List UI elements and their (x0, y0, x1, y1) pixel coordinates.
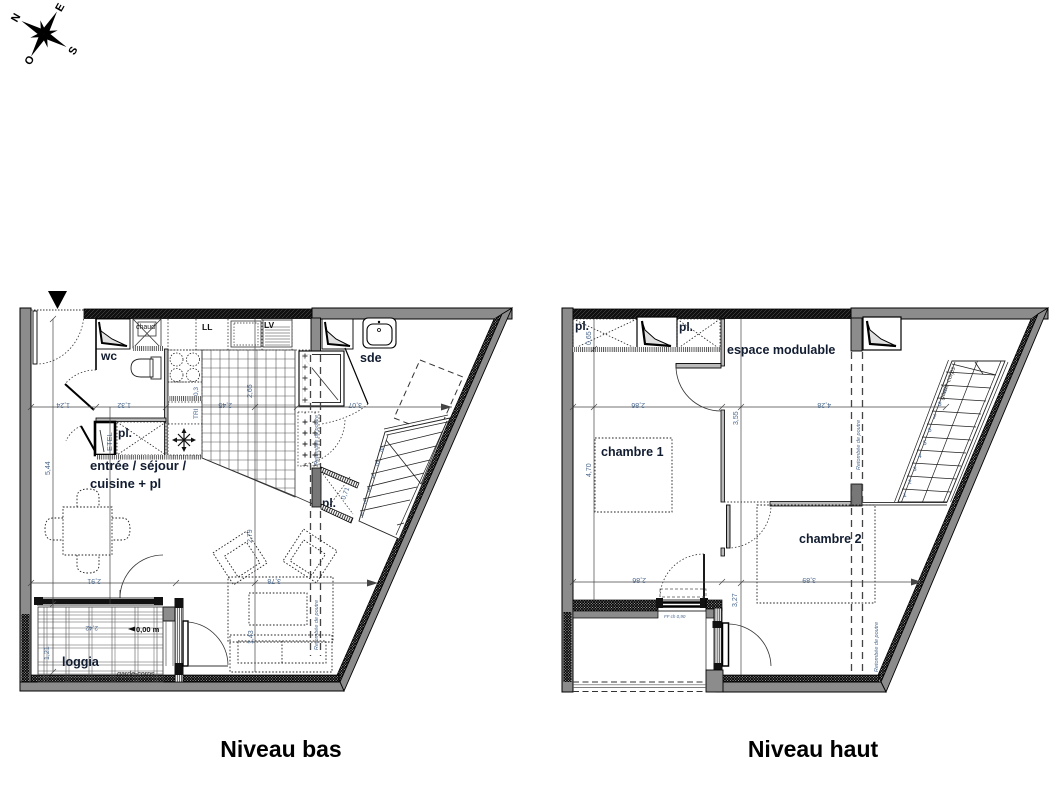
svg-text:0,3: 0,3 (193, 387, 200, 396)
svg-text:garde-corps: garde-corps (117, 671, 155, 678)
svg-text:Retombée de poutre: Retombée de poutre (314, 415, 320, 465)
svg-text:FF ch 0,90: FF ch 0,90 (664, 614, 686, 619)
svg-text:2,86: 2,86 (631, 401, 645, 408)
svg-text:ETEL: ETEL (105, 432, 114, 451)
svg-text:espace modulable: espace modulable (727, 343, 835, 357)
svg-text:chaud: chaud (136, 324, 155, 331)
svg-text:5: 5 (923, 440, 927, 447)
svg-text:1,24: 1,24 (56, 401, 70, 408)
svg-text:1,43: 1,43 (248, 630, 255, 644)
svg-text:sde: sde (360, 351, 382, 365)
svg-text:pl.: pl. (118, 426, 132, 440)
svg-text:chambre 1: chambre 1 (601, 445, 664, 459)
svg-text:Retombée de poutre: Retombée de poutre (314, 600, 320, 650)
svg-text:1,32: 1,32 (117, 401, 131, 408)
svg-text:5,44: 5,44 (45, 461, 52, 475)
svg-text:Retombée de poutre: Retombée de poutre (856, 420, 862, 470)
svg-text:4: 4 (918, 453, 922, 460)
svg-text:3,55: 3,55 (733, 411, 740, 425)
svg-text:1: 1 (903, 492, 907, 499)
svg-text:3: 3 (367, 487, 371, 494)
svg-text:0,00 m: 0,00 m (136, 625, 160, 634)
svg-text:1,21: 1,21 (44, 646, 51, 660)
svg-text:2,65: 2,65 (247, 384, 254, 398)
svg-text:pl.: pl. (679, 320, 693, 334)
svg-text:chambre 2: chambre 2 (799, 532, 862, 546)
svg-text:3,27: 3,27 (732, 593, 739, 607)
svg-text:5: 5 (376, 461, 380, 468)
svg-text:0,65: 0,65 (586, 331, 593, 345)
svg-text:LL: LL (202, 322, 212, 332)
svg-text:2,42: 2,42 (85, 624, 98, 631)
svg-text:3,07: 3,07 (348, 401, 362, 408)
svg-text:2: 2 (363, 499, 367, 506)
svg-text:Niveau haut: Niveau haut (748, 736, 879, 762)
svg-text:LV: LV (264, 320, 275, 330)
svg-text:3,78: 3,78 (267, 577, 281, 584)
svg-text:3: 3 (913, 466, 917, 473)
svg-text:loggia: loggia (62, 655, 100, 669)
svg-text:Retombée de poutre: Retombée de poutre (874, 622, 880, 672)
svg-text:3,89: 3,89 (802, 576, 816, 583)
svg-text:2,91: 2,91 (87, 577, 101, 584)
svg-text:Niveau bas: Niveau bas (220, 736, 341, 762)
svg-text:2,79: 2,79 (247, 529, 254, 543)
svg-text:entrée / séjour /: entrée / séjour / (90, 458, 186, 473)
svg-text:2,45: 2,45 (218, 401, 232, 408)
svg-text:TRI: TRI (193, 408, 200, 419)
svg-text:6: 6 (928, 427, 932, 434)
svg-text:6: 6 (380, 447, 384, 454)
svg-text:2: 2 (908, 479, 912, 486)
svg-text:pl.: pl. (575, 319, 589, 333)
svg-text:7: 7 (933, 414, 937, 421)
svg-text:4: 4 (371, 474, 375, 481)
svg-text:wc: wc (100, 349, 117, 363)
svg-text:9: 9 (943, 388, 947, 395)
svg-text:1: 1 (360, 511, 364, 518)
svg-text:4,28: 4,28 (817, 401, 831, 408)
svg-text:2,86: 2,86 (632, 576, 646, 583)
svg-text:cuisine + pl: cuisine + pl (90, 476, 161, 491)
svg-text:4,70: 4,70 (586, 463, 593, 477)
